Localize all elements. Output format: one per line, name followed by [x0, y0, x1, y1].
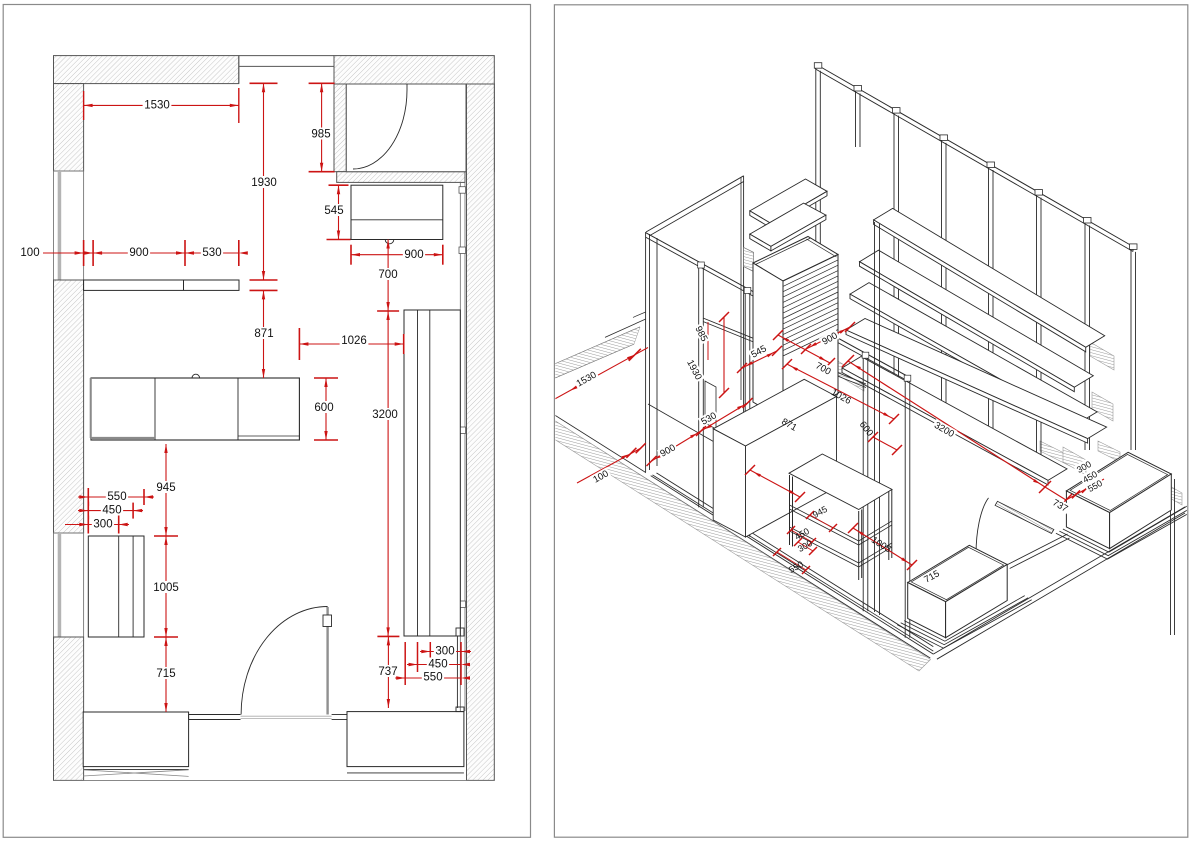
- svg-text:900: 900: [129, 247, 148, 259]
- svg-text:985: 985: [311, 129, 330, 141]
- svg-text:1005: 1005: [153, 582, 179, 594]
- svg-text:945: 945: [156, 482, 175, 494]
- svg-text:737: 737: [378, 666, 397, 678]
- svg-text:300: 300: [93, 519, 112, 531]
- svg-text:1530: 1530: [144, 99, 170, 111]
- svg-text:100: 100: [20, 247, 39, 259]
- svg-text:450: 450: [428, 659, 447, 671]
- svg-text:550: 550: [107, 491, 126, 503]
- svg-text:600: 600: [314, 402, 333, 414]
- svg-text:3200: 3200: [372, 409, 398, 421]
- svg-text:1930: 1930: [251, 177, 277, 189]
- svg-text:300: 300: [435, 646, 454, 658]
- svg-text:900: 900: [404, 249, 423, 261]
- svg-text:545: 545: [324, 205, 343, 217]
- svg-text:871: 871: [254, 328, 273, 340]
- svg-text:550: 550: [423, 672, 442, 684]
- svg-text:700: 700: [378, 269, 397, 281]
- svg-text:450: 450: [102, 505, 121, 517]
- svg-text:1026: 1026: [341, 335, 367, 347]
- svg-text:715: 715: [156, 668, 175, 680]
- svg-text:530: 530: [202, 247, 221, 259]
